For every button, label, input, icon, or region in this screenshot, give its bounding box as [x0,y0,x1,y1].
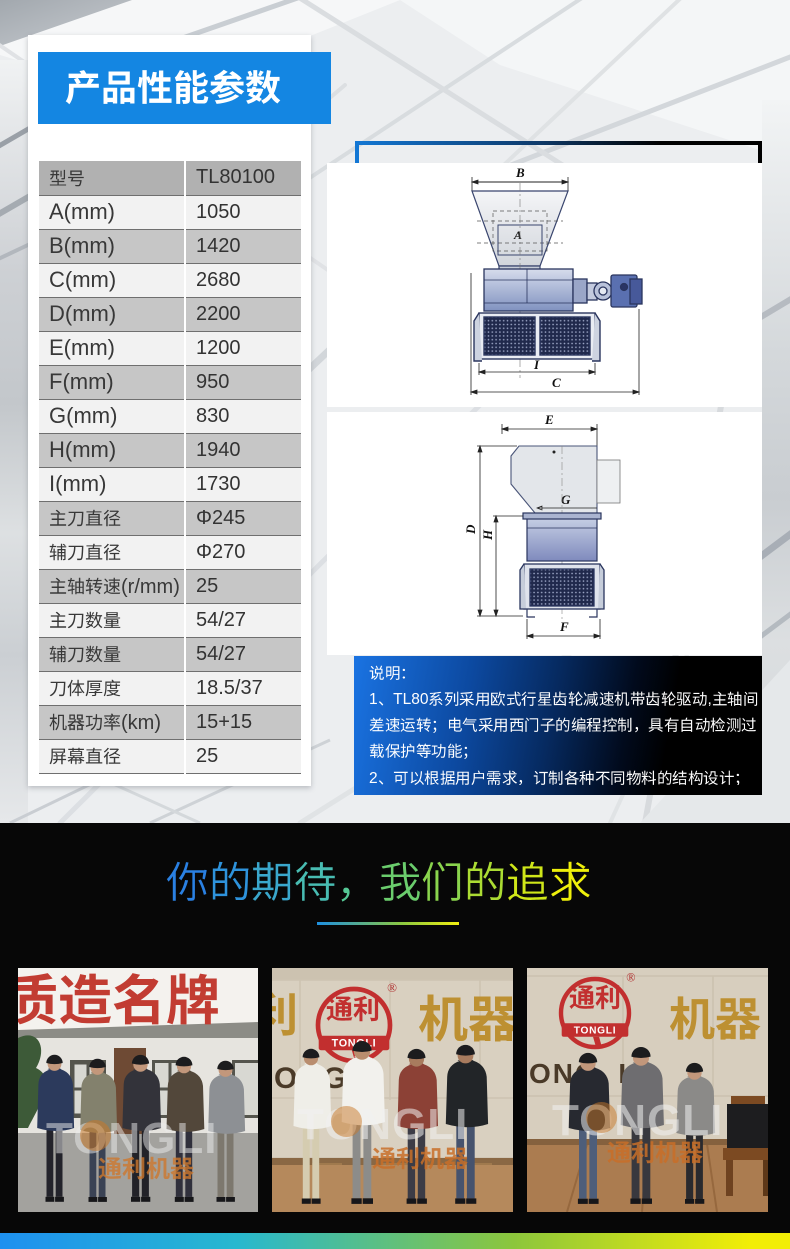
svg-text:F: F [559,619,569,634]
svg-text:I: I [533,357,540,372]
svg-text:A: A [513,228,522,242]
svg-text:H: H [480,529,495,541]
svg-text:C: C [552,375,561,390]
svg-text:B: B [515,165,525,180]
svg-text:E: E [544,412,554,427]
svg-text:G: G [561,492,571,507]
svg-text:D: D [463,524,478,535]
